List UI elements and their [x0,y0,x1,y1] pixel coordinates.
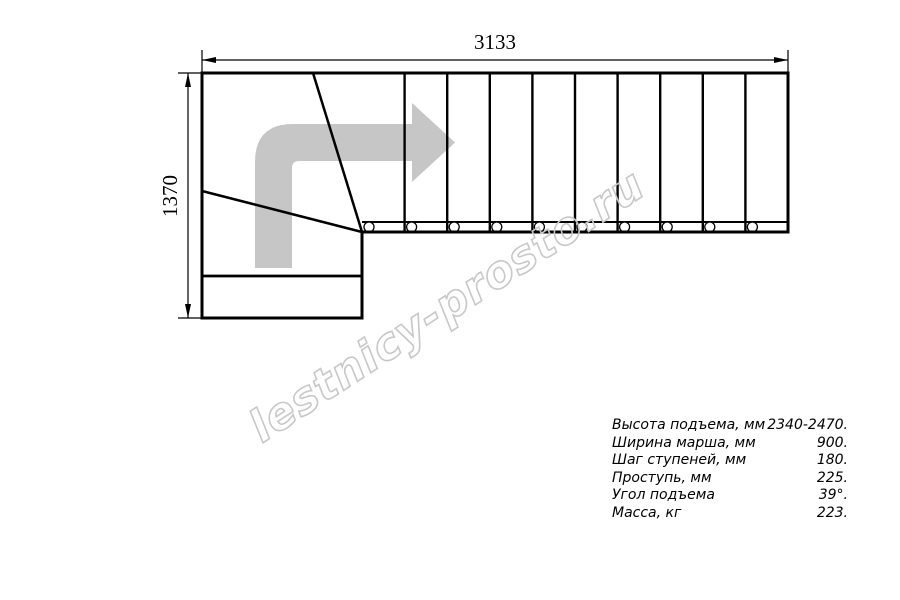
spec-label: Шаг ступеней, мм [612,452,746,470]
step-divider-lines [405,73,746,232]
spec-row: Ширина марша, мм900. [612,435,848,453]
spec-table: Высота подъема, мм2340-2470.Ширина марша… [612,417,848,523]
arrowhead-up-icon [185,73,191,87]
spec-row: Угол подъема39°. [612,487,848,505]
spec-value: 900. [817,435,848,453]
spec-label: Высота подъема, мм [612,417,765,435]
spec-value: 225. [817,470,848,488]
dimension-height-label: 1370 [158,175,182,217]
spec-value: 39°. [819,487,848,505]
spec-row: Высота подъема, мм2340-2470. [612,417,848,435]
spec-label: Угол подъема [612,487,715,505]
spec-value: 223. [817,505,848,523]
spec-label: Масса, кг [612,505,681,523]
spec-row: Проступь, мм225. [612,470,848,488]
spec-row: Масса, кг223. [612,505,848,523]
stair-drawing-page: 3133 1370 lestnicy-prosto.ru Высота подъ… [0,0,900,600]
dimension-width-label: 3133 [474,30,516,54]
spec-row: Шаг ступеней, мм180. [612,452,848,470]
arrowhead-down-icon [185,304,191,318]
spec-label: Проступь, мм [612,470,712,488]
spec-value: 2340-2470. [767,417,848,435]
direction-arrow [255,103,455,268]
arrowhead-left-icon [202,57,216,63]
spec-label: Ширина марша, мм [612,435,756,453]
spec-value: 180. [817,452,848,470]
arrowhead-right-icon [774,57,788,63]
